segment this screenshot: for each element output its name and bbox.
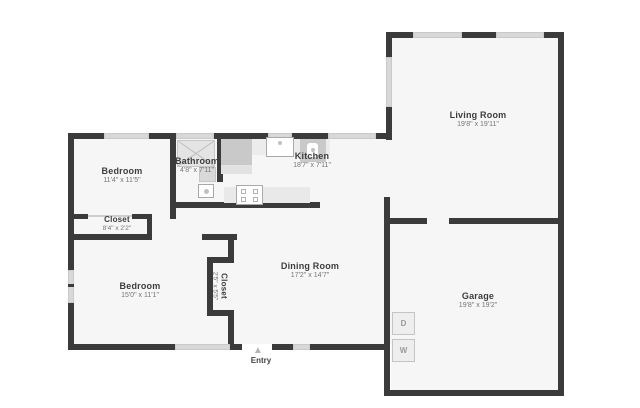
room-label-bedroom-2: Bedroom 15'0" x 11'1" [120, 281, 161, 300]
wall-segment [449, 218, 564, 224]
counter [221, 165, 252, 174]
window-divider [68, 284, 74, 287]
kitchen-sink-icon [266, 137, 294, 157]
wall-segment [388, 390, 564, 396]
window [496, 32, 544, 38]
window [413, 32, 462, 38]
wall-segment [228, 310, 234, 344]
floor-plan: D W ▲ Entry Bedroom 11'4" x 11'5" Bathro… [0, 0, 640, 408]
wall-segment [230, 344, 242, 350]
wall-segment [68, 303, 74, 350]
wall-segment [68, 133, 74, 270]
wall-segment [558, 32, 564, 396]
room-label-living-room: Living Room 19'8" x 19'11" [450, 110, 507, 129]
window [328, 133, 376, 139]
wall-segment [74, 234, 152, 240]
dryer-box: D [392, 312, 415, 335]
entry-arrow-icon: ▲ [253, 346, 263, 356]
room-label-closet-bedroom: Closet 2'5" x 5'5" [211, 272, 228, 300]
window [293, 344, 310, 350]
wall-segment [74, 214, 88, 219]
window [176, 133, 214, 139]
wall-segment [462, 32, 496, 38]
wall-segment [386, 107, 392, 140]
window [386, 57, 392, 107]
floor-right-wing [391, 35, 561, 393]
room-label-bedroom-1: Bedroom 11'4" x 11'5" [102, 166, 143, 185]
window [104, 133, 149, 139]
wall-segment [68, 344, 175, 350]
entry-label: Entry [251, 356, 271, 365]
wall-segment [272, 344, 293, 350]
toilet-icon [198, 184, 214, 198]
wall-segment [310, 344, 390, 350]
room-label-garage: Garage 19'8" x 19'2" [459, 291, 497, 310]
room-label-dining-room: Dining Room 17'2" x 14'7" [281, 261, 339, 280]
washer-box: W [392, 339, 415, 362]
room-label-closet-hall: Closet 8'4" x 2'2" [103, 215, 131, 232]
wall-segment [386, 32, 392, 57]
wall-segment [388, 218, 427, 224]
stove-cooktop-icon [236, 185, 263, 205]
wall-segment [384, 197, 390, 396]
window [175, 344, 230, 350]
room-label-kitchen: Kitchen 18'7" x 7'11" [293, 151, 331, 170]
room-label-bathroom: Bathroom 4'8" x 7'11" [175, 156, 219, 175]
refrigerator-icon [221, 139, 252, 165]
